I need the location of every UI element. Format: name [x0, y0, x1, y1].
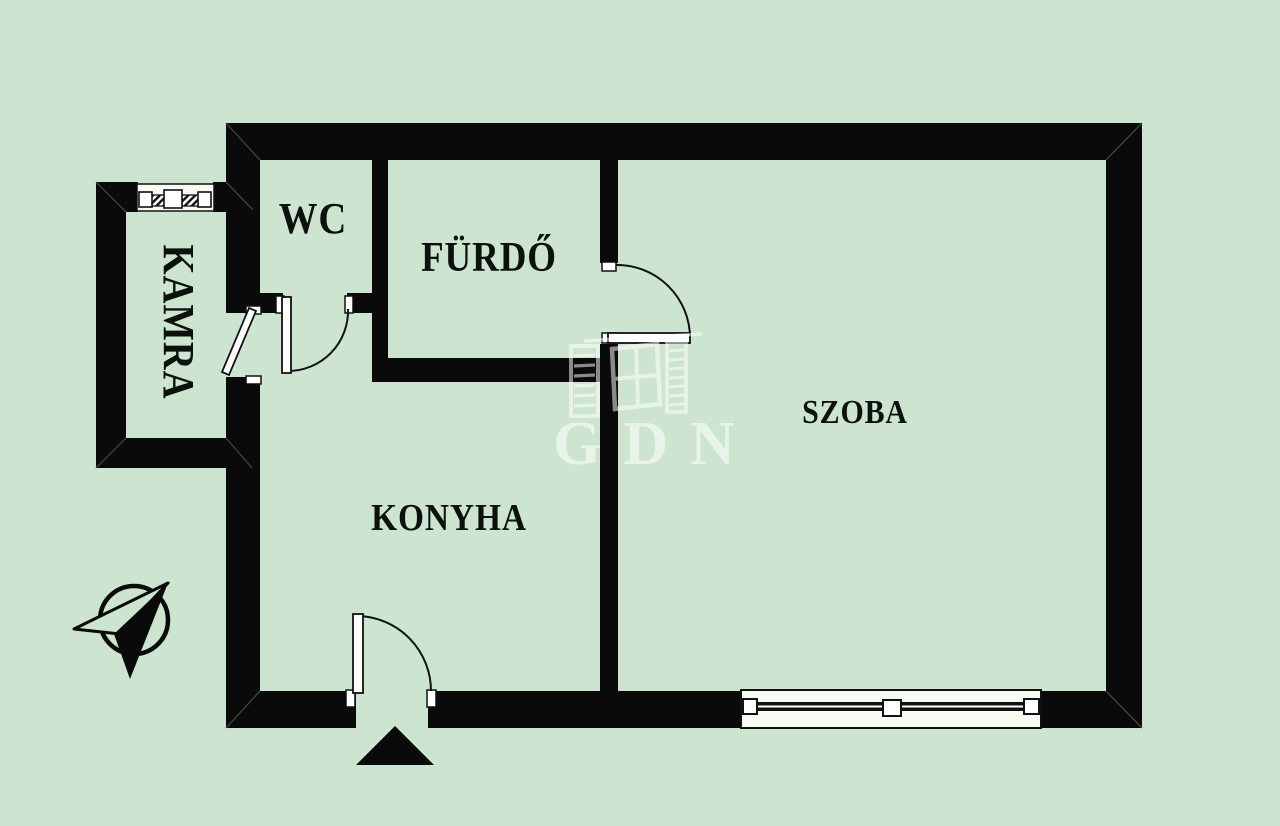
watermark-building-icon — [571, 334, 702, 416]
entrance-opening — [356, 691, 428, 728]
door-entrance-leaf — [353, 614, 363, 693]
door-furdo-arc — [616, 265, 690, 338]
watermark-text: GDN — [553, 413, 757, 475]
door-kamra-leaf — [222, 308, 256, 375]
room-label-konyha: KONYHA — [371, 499, 527, 537]
door-wc-leaf — [282, 297, 291, 373]
wall-right — [1106, 123, 1142, 728]
north-arrow-compass — [74, 583, 168, 679]
room-label-kamra: KAMRA — [156, 245, 200, 400]
floor-plan-canvas: WC FÜRDŐ KAMRA KONYHA SZOBA GDN — [0, 0, 1280, 826]
wall-top — [226, 123, 1142, 160]
wall-left-lower — [226, 377, 260, 691]
wall-annex-bottom — [96, 438, 252, 468]
door-furdo-szoba — [602, 262, 690, 343]
window-szoba — [741, 690, 1041, 728]
wall-annex-left — [96, 182, 126, 468]
wall-annex-top-left — [96, 182, 138, 212]
wall-szoba-upper — [600, 123, 618, 263]
door-entrance-arc — [358, 616, 431, 691]
room-label-furdo: FÜRDŐ — [421, 237, 557, 279]
window-kamra — [137, 184, 214, 211]
door-wc-arc — [288, 309, 348, 371]
room-label-wc: WC — [279, 197, 347, 241]
wall-annex-top-right — [213, 182, 226, 212]
wall-wc-furdo — [372, 123, 388, 382]
door-kamra — [222, 306, 261, 384]
entrance-triangle-marker — [356, 726, 434, 765]
door-wc — [276, 296, 353, 373]
wall-furdo-bottom — [372, 358, 618, 382]
wall-left-upper — [226, 123, 260, 313]
room-label-szoba: SZOBA — [802, 396, 908, 430]
